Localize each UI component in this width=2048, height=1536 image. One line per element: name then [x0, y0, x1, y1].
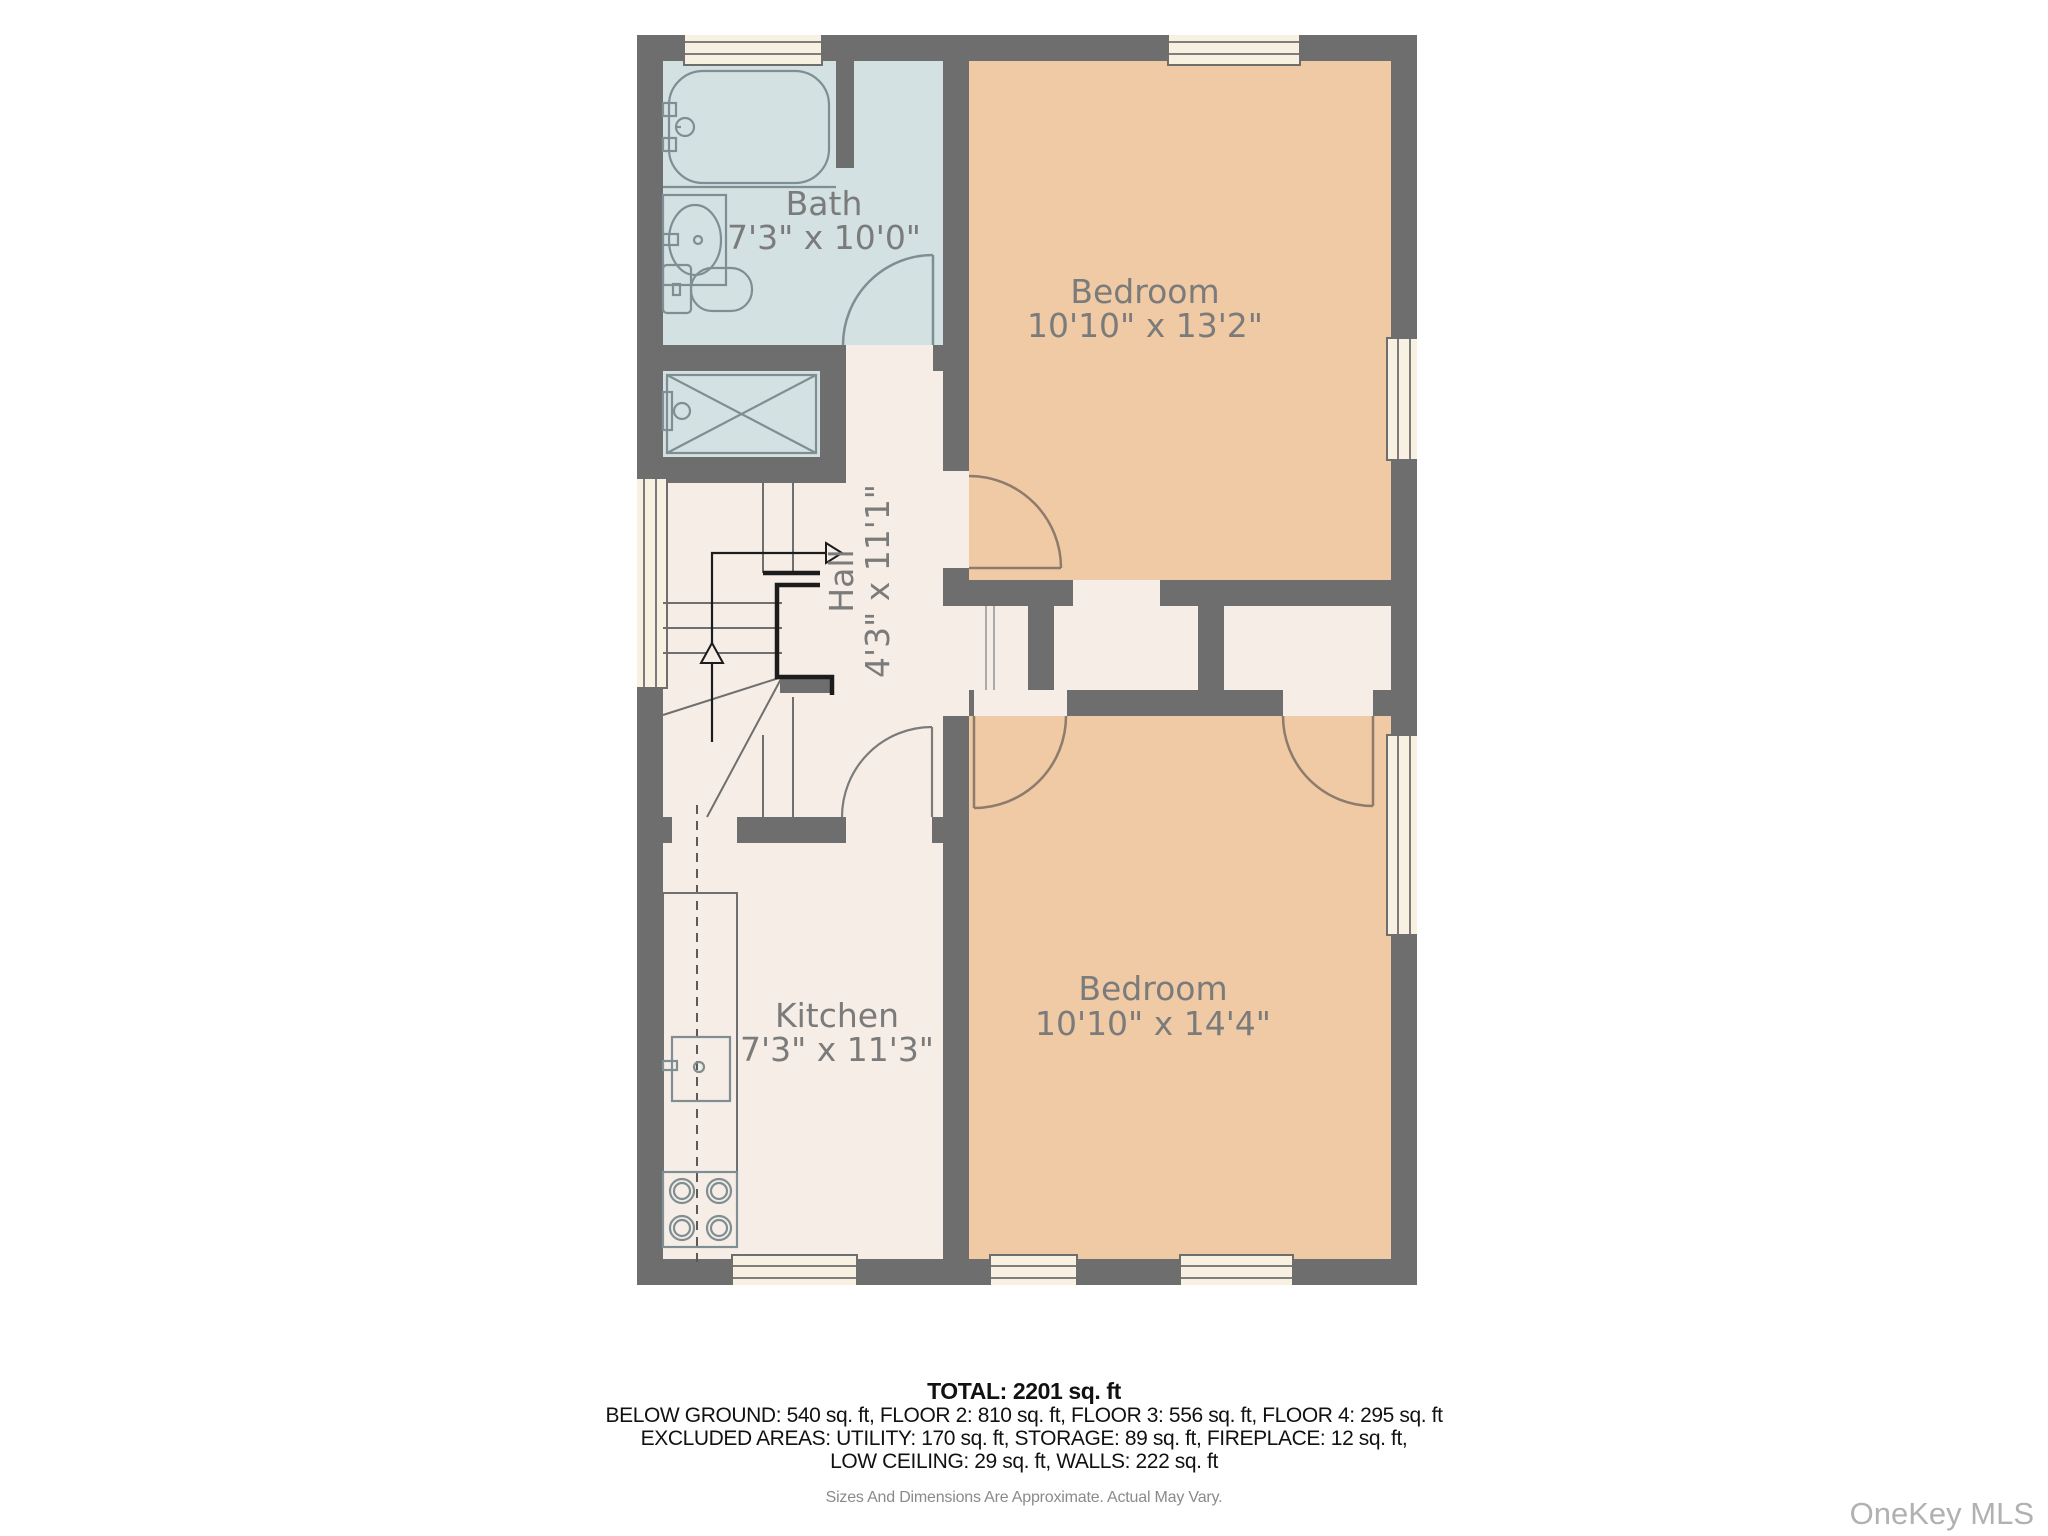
excluded-areas-text-2: LOW CEILING: 29 sq. ft, WALLS: 222 sq. f…	[0, 1450, 2048, 1473]
wall-segment	[637, 817, 672, 843]
wall-segment	[932, 817, 943, 843]
floorplan-page: Bath 7'3" x 10'0" Bedroom 10'10" x 13'2"…	[0, 0, 2048, 1536]
total-area-text: TOTAL: 2201 sq. ft	[0, 1378, 2048, 1404]
wall-segment	[943, 716, 969, 1259]
wall-segment	[836, 61, 854, 168]
wall-segment	[943, 61, 969, 471]
window-symbol	[1387, 338, 1417, 460]
window-symbol	[637, 478, 667, 688]
wall-segment	[1373, 690, 1391, 716]
wall-segment	[1160, 580, 1391, 606]
wall-segment	[1198, 606, 1224, 690]
window-symbol	[1180, 1255, 1293, 1285]
onekey-mls-watermark: OneKey MLS	[1850, 1496, 2034, 1532]
hall-dims: 4'3" x 11'1"	[858, 484, 897, 678]
wall-segment	[1028, 606, 1054, 690]
bath-dims: 7'3" x 10'0"	[727, 218, 921, 257]
wall-segment	[943, 568, 969, 606]
wall-segment	[1067, 690, 1283, 716]
area-summary: TOTAL: 2201 sq. ft BELOW GROUND: 540 sq.…	[0, 1378, 2048, 1507]
window-symbol	[732, 1255, 857, 1285]
bedroom-top-dims: 10'10" x 13'2"	[1027, 306, 1263, 345]
floorplan-drawing: Bath 7'3" x 10'0" Bedroom 10'10" x 13'2"…	[637, 35, 1417, 1285]
window-symbol	[684, 35, 822, 65]
wall-segment	[737, 817, 846, 843]
window-symbol	[1387, 735, 1417, 935]
kitchen-dims: 7'3" x 11'3"	[740, 1030, 934, 1069]
floor-areas-text: BELOW GROUND: 540 sq. ft, FLOOR 2: 810 s…	[0, 1404, 2048, 1427]
window-symbol	[1168, 35, 1300, 65]
excluded-areas-text-1: EXCLUDED AREAS: UTILITY: 170 sq. ft, STO…	[0, 1427, 2048, 1450]
hall-label: Hall	[822, 549, 861, 612]
disclaimer-text: Sizes And Dimensions Are Approximate. Ac…	[0, 1489, 2048, 1507]
bedroom-bottom-label: Bedroom	[1078, 969, 1227, 1008]
wall-segment	[969, 580, 1073, 606]
window-symbol	[990, 1255, 1077, 1285]
wall-segment	[780, 677, 832, 693]
wall-segment	[637, 457, 846, 483]
wall-segment	[637, 345, 843, 371]
wall-segment	[969, 690, 974, 716]
bedroom-bottom-dims: 10'10" x 14'4"	[1035, 1004, 1271, 1043]
